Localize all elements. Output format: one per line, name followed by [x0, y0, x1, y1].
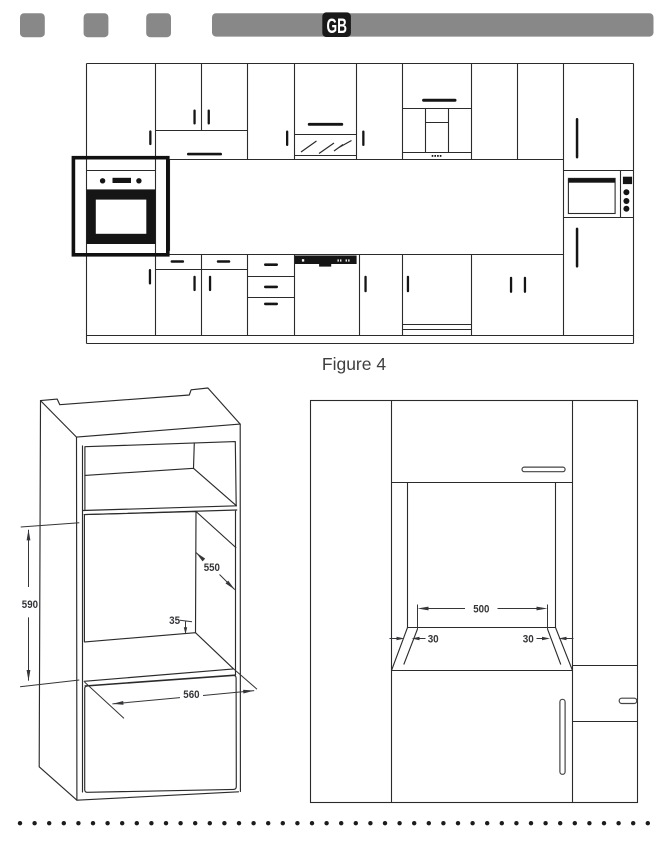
svg-text:550: 550	[204, 562, 220, 574]
svg-text:500: 500	[473, 604, 489, 616]
svg-text:Figure 4: Figure 4	[322, 354, 386, 374]
svg-text:560: 560	[183, 689, 199, 701]
svg-text:30: 30	[523, 634, 534, 646]
svg-text:35: 35	[169, 615, 180, 627]
svg-text:590: 590	[22, 599, 38, 611]
svg-text:GB: GB	[326, 15, 347, 38]
svg-text:30: 30	[428, 634, 439, 646]
